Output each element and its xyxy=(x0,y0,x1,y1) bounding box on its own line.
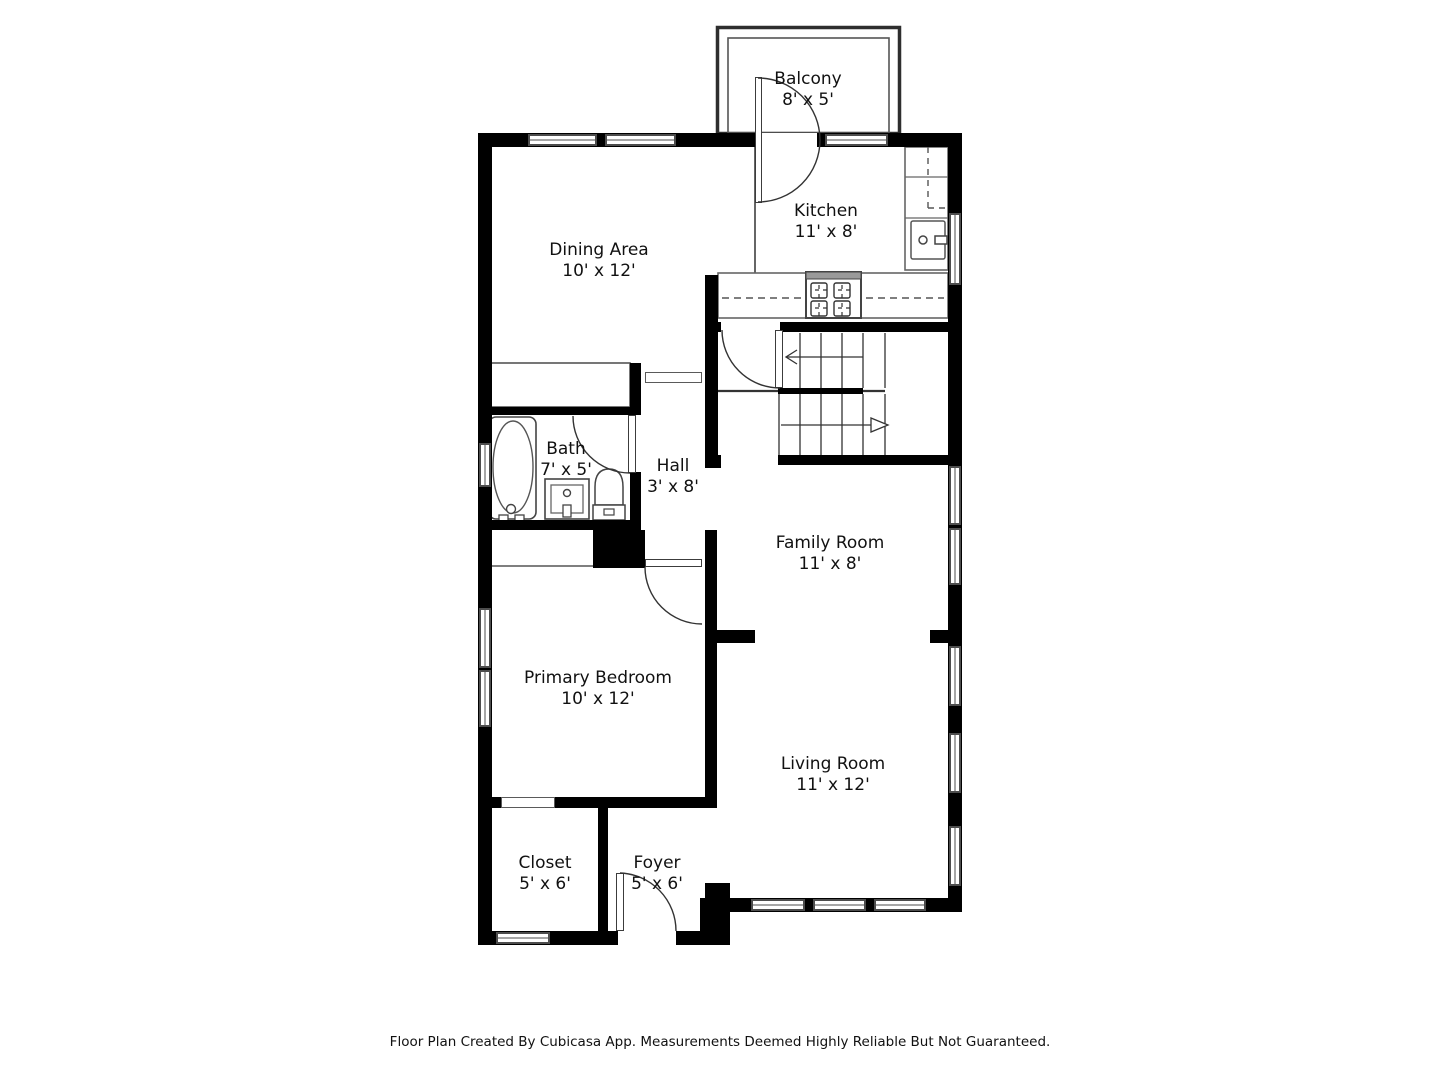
room-dims: 11' x 8' xyxy=(776,554,885,575)
room-dims: 7' x 5' xyxy=(540,460,592,481)
stairs-door-arc xyxy=(722,330,780,388)
label-kitchen: Kitchen 11' x 8' xyxy=(794,201,858,243)
room-dims: 5' x 6' xyxy=(519,874,572,895)
room-dims: 11' x 12' xyxy=(781,775,885,796)
label-balcony: Balcony 8' x 5' xyxy=(774,69,841,111)
room-name: Living Room xyxy=(781,754,885,775)
label-bath: Bath 7' x 5' xyxy=(540,439,592,481)
label-foyer: Foyer 5' x 6' xyxy=(631,853,683,895)
label-family-room: Family Room 11' x 8' xyxy=(776,533,885,575)
room-name: Dining Area xyxy=(549,240,648,261)
room-name: Kitchen xyxy=(794,201,858,222)
room-name: Balcony xyxy=(774,69,841,90)
room-dims: 11' x 8' xyxy=(794,222,858,243)
room-dims: 10' x 12' xyxy=(549,261,648,282)
room-dims: 3' x 8' xyxy=(647,477,699,498)
room-name: Foyer xyxy=(631,853,683,874)
label-hall: Hall 3' x 8' xyxy=(647,456,699,498)
room-name: Closet xyxy=(519,853,572,874)
footer-disclaimer: Floor Plan Created By Cubicasa App. Meas… xyxy=(390,1034,1051,1050)
room-dims: 8' x 5' xyxy=(774,90,841,111)
room-name: Hall xyxy=(647,456,699,477)
bedroom-door-arc xyxy=(645,567,702,624)
room-dims: 5' x 6' xyxy=(631,874,683,895)
floor-plan: Balcony 8' x 5' Kitchen 11' x 8' Dining … xyxy=(0,0,1440,1080)
room-name: Primary Bedroom xyxy=(524,668,672,689)
room-name: Bath xyxy=(540,439,592,460)
label-primary-bedroom: Primary Bedroom 10' x 12' xyxy=(524,668,672,710)
room-name: Family Room xyxy=(776,533,885,554)
room-dims: 10' x 12' xyxy=(524,689,672,710)
label-dining-area: Dining Area 10' x 12' xyxy=(549,240,648,282)
label-closet: Closet 5' x 6' xyxy=(519,853,572,895)
label-living-room: Living Room 11' x 12' xyxy=(781,754,885,796)
door-arcs-layer xyxy=(0,0,1440,1080)
